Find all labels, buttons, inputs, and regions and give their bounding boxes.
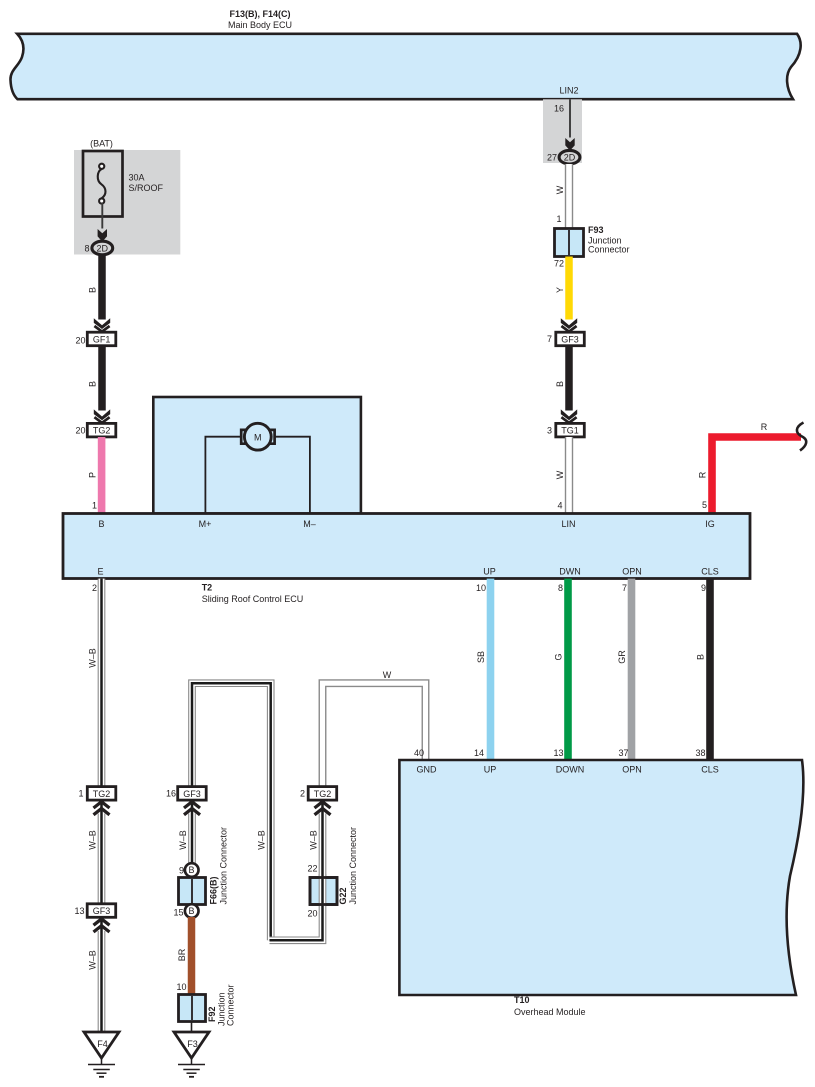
svg-text:20: 20 — [75, 426, 85, 436]
svg-text:OPN: OPN — [622, 567, 642, 577]
svg-text:F3: F3 — [187, 1039, 198, 1049]
svg-text:Sliding Roof Control ECU: Sliding Roof Control ECU — [202, 594, 304, 604]
svg-text:M+: M+ — [199, 519, 212, 529]
svg-text:TG2: TG2 — [93, 789, 111, 799]
svg-text:GF1: GF1 — [93, 334, 111, 344]
svg-text:Connector: Connector — [588, 245, 630, 255]
svg-text:R: R — [761, 422, 768, 432]
svg-text:Main Body ECU: Main Body ECU — [228, 20, 292, 30]
svg-text:B: B — [188, 906, 194, 916]
svg-text:T2: T2 — [202, 583, 213, 593]
svg-text:DOWN: DOWN — [556, 765, 585, 775]
svg-text:27: 27 — [547, 153, 557, 163]
svg-text:M–: M– — [303, 519, 316, 529]
svg-text:M: M — [254, 433, 262, 443]
svg-text:GR: GR — [617, 650, 627, 664]
svg-text:BR: BR — [177, 948, 187, 961]
svg-text:15: 15 — [173, 908, 183, 918]
svg-text:TG2: TG2 — [93, 426, 111, 436]
svg-text:LIN: LIN — [561, 519, 575, 529]
svg-text:CLS: CLS — [701, 567, 719, 577]
svg-text:40: 40 — [414, 748, 424, 758]
svg-text:GF3: GF3 — [561, 334, 579, 344]
svg-text:10: 10 — [176, 982, 186, 992]
svg-text:GF3: GF3 — [183, 789, 201, 799]
svg-text:B: B — [696, 654, 706, 660]
svg-text:E: E — [97, 567, 103, 577]
svg-text:(BAT): (BAT) — [90, 139, 113, 149]
svg-text:T10: T10 — [514, 995, 530, 1005]
svg-text:Overhead Module: Overhead Module — [514, 1007, 586, 1017]
svg-text:F13(B), F14(C): F13(B), F14(C) — [229, 9, 290, 19]
svg-text:14: 14 — [474, 748, 484, 758]
svg-text:B: B — [88, 381, 98, 387]
svg-text:CLS: CLS — [701, 765, 719, 775]
svg-text:3: 3 — [547, 426, 552, 436]
svg-text:UP: UP — [484, 765, 497, 775]
svg-text:TG2: TG2 — [314, 789, 332, 799]
svg-text:UP: UP — [483, 567, 496, 577]
svg-text:B: B — [555, 381, 565, 387]
svg-text:1: 1 — [92, 501, 97, 511]
svg-text:SB: SB — [476, 651, 486, 663]
svg-text:W–B: W–B — [88, 830, 98, 850]
svg-text:W–B: W–B — [88, 648, 98, 668]
svg-text:20: 20 — [75, 336, 85, 346]
svg-text:10: 10 — [476, 583, 486, 593]
svg-text:37: 37 — [618, 748, 628, 758]
svg-text:13: 13 — [74, 906, 84, 916]
svg-text:W–B: W–B — [178, 830, 188, 850]
svg-text:8: 8 — [84, 244, 89, 254]
svg-text:GF3: GF3 — [93, 906, 111, 916]
svg-text:1: 1 — [556, 214, 561, 224]
svg-text:16: 16 — [554, 104, 564, 114]
svg-text:2: 2 — [300, 789, 305, 799]
svg-text:20: 20 — [307, 909, 317, 919]
svg-text:LIN2: LIN2 — [559, 86, 578, 96]
svg-text:F66(B): F66(B) — [209, 876, 219, 904]
svg-text:G22: G22 — [338, 887, 348, 904]
svg-text:GND: GND — [417, 765, 438, 775]
svg-text:1: 1 — [78, 789, 83, 799]
svg-text:22: 22 — [307, 864, 317, 874]
svg-text:W: W — [555, 185, 565, 194]
svg-text:Y: Y — [555, 287, 565, 293]
svg-text:2: 2 — [92, 583, 97, 593]
svg-text:W: W — [555, 470, 565, 479]
svg-text:W–B: W–B — [88, 950, 98, 970]
svg-text:DWN: DWN — [559, 567, 581, 577]
svg-text:Connector: Connector — [226, 984, 236, 1026]
svg-text:B: B — [98, 519, 104, 529]
svg-text:Junction Connector: Junction Connector — [219, 827, 229, 905]
svg-text:TG1: TG1 — [561, 426, 579, 436]
svg-text:P: P — [88, 472, 98, 478]
svg-text:2D: 2D — [97, 243, 109, 253]
svg-text:5: 5 — [702, 500, 707, 510]
svg-text:W: W — [383, 670, 392, 680]
svg-text:9: 9 — [701, 583, 706, 593]
svg-text:W–B: W–B — [309, 830, 319, 850]
svg-text:R: R — [698, 471, 708, 478]
svg-text:13: 13 — [553, 748, 563, 758]
svg-text:2D: 2D — [564, 153, 576, 163]
svg-text:W–B: W–B — [257, 830, 267, 850]
svg-text:S/ROOF: S/ROOF — [129, 183, 164, 193]
svg-text:G: G — [554, 653, 564, 660]
svg-text:38: 38 — [695, 748, 705, 758]
svg-text:7: 7 — [547, 334, 552, 344]
svg-text:9: 9 — [179, 866, 184, 876]
svg-text:4: 4 — [557, 501, 562, 511]
svg-text:IG: IG — [705, 519, 715, 529]
svg-text:B: B — [88, 287, 98, 293]
svg-text:7: 7 — [622, 583, 627, 593]
svg-text:F4: F4 — [97, 1039, 108, 1049]
svg-text:F93: F93 — [588, 225, 604, 235]
svg-text:8: 8 — [558, 583, 563, 593]
svg-text:30A: 30A — [129, 173, 145, 183]
svg-text:B: B — [188, 865, 194, 875]
svg-text:OPN: OPN — [622, 765, 642, 775]
svg-text:Junction Connector: Junction Connector — [348, 827, 358, 905]
svg-text:F92: F92 — [207, 1006, 217, 1022]
svg-text:72: 72 — [554, 259, 564, 269]
svg-text:16: 16 — [166, 789, 176, 799]
